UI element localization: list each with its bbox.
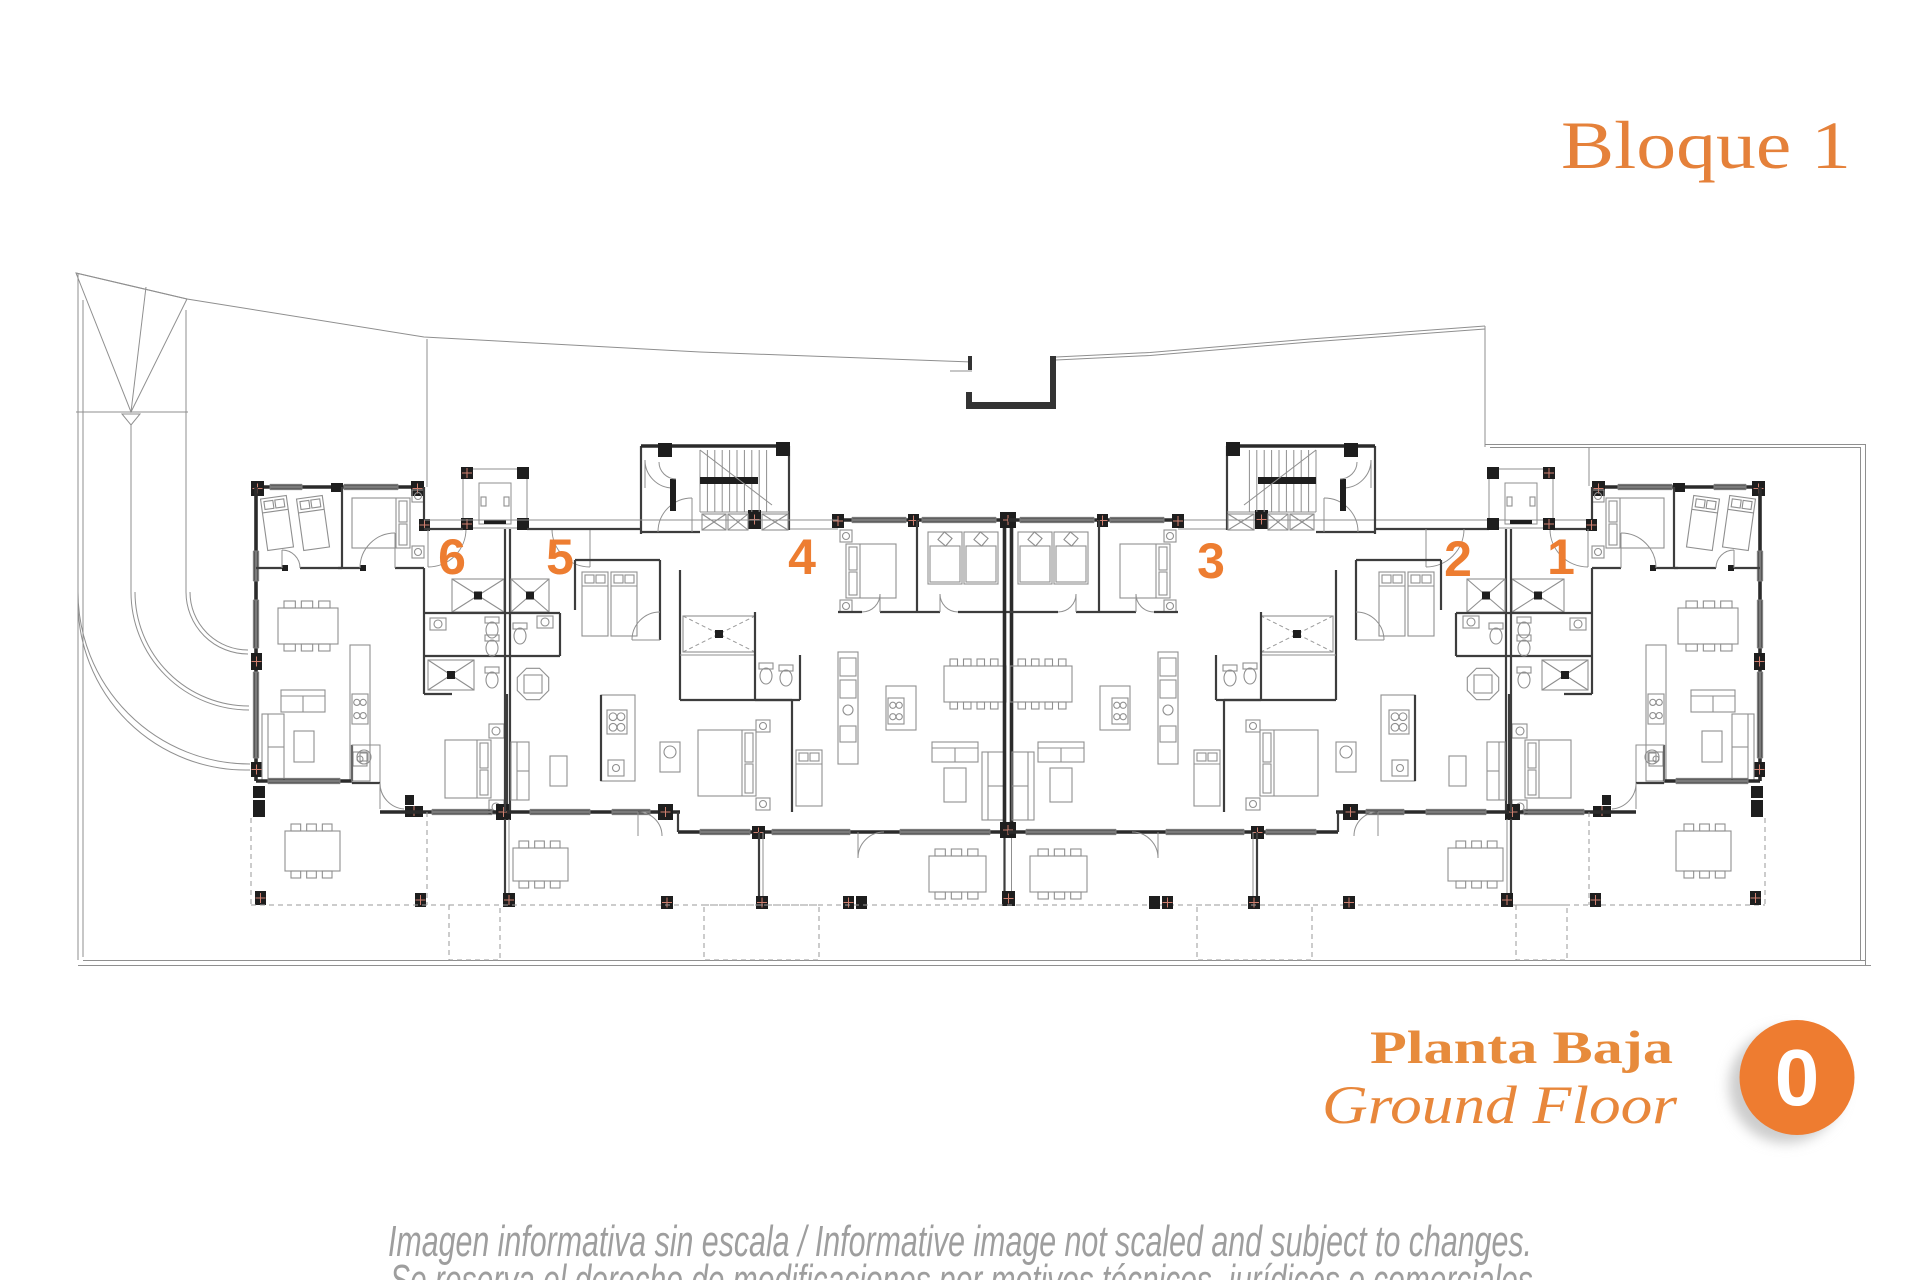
svg-text:5: 5: [546, 529, 574, 585]
svg-text:6: 6: [438, 529, 466, 585]
svg-text:3: 3: [1197, 533, 1225, 589]
svg-text:Se reserva el derecho de modif: Se reserva el derecho de modificaciones …: [390, 1256, 1541, 1280]
svg-text:Planta Baja: Planta Baja: [1370, 1022, 1673, 1074]
svg-text:Ground Floor: Ground Floor: [1322, 1075, 1678, 1135]
svg-text:1: 1: [1547, 529, 1575, 585]
svg-text:Bloque 1: Bloque 1: [1561, 107, 1851, 183]
svg-text:0: 0: [1775, 1033, 1820, 1122]
svg-text:4: 4: [788, 529, 816, 585]
svg-text:2: 2: [1444, 531, 1472, 587]
